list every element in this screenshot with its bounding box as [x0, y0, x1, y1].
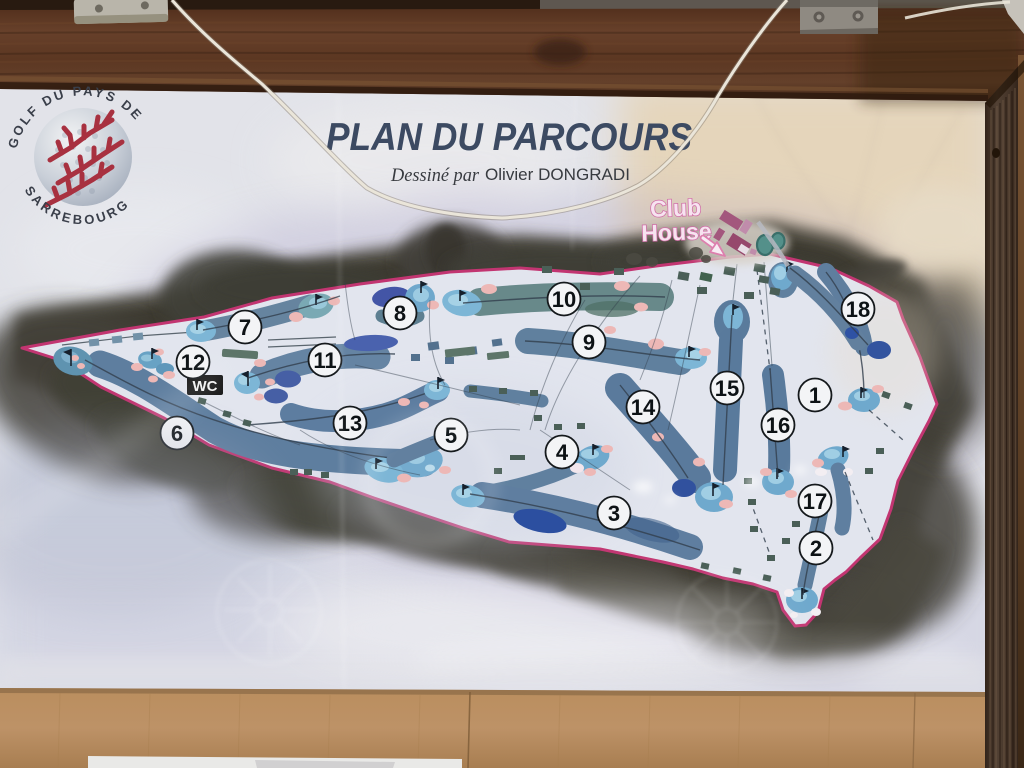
svg-text:Olivier DONGRADI: Olivier DONGRADI	[485, 166, 630, 184]
svg-text:PLAN DU PARCOURS: PLAN DU PARCOURS	[326, 116, 692, 159]
svg-text:7: 7	[239, 315, 251, 340]
svg-text:16: 16	[766, 413, 790, 438]
svg-text:10: 10	[552, 287, 576, 312]
svg-text:4: 4	[556, 440, 569, 465]
svg-text:3: 3	[608, 501, 620, 526]
svg-text:Dessiné par: Dessiné par	[390, 165, 480, 186]
svg-text:2: 2	[810, 536, 822, 561]
svg-text:1: 1	[809, 383, 821, 408]
svg-text:14: 14	[631, 395, 656, 420]
svg-text:11: 11	[313, 348, 336, 373]
svg-text:15: 15	[715, 376, 739, 401]
svg-text:8: 8	[394, 301, 406, 326]
svg-text:18: 18	[846, 297, 870, 322]
svg-text:9: 9	[583, 330, 595, 355]
svg-text:House: House	[641, 218, 712, 246]
svg-text:17: 17	[803, 489, 827, 514]
svg-text:12: 12	[181, 350, 205, 375]
